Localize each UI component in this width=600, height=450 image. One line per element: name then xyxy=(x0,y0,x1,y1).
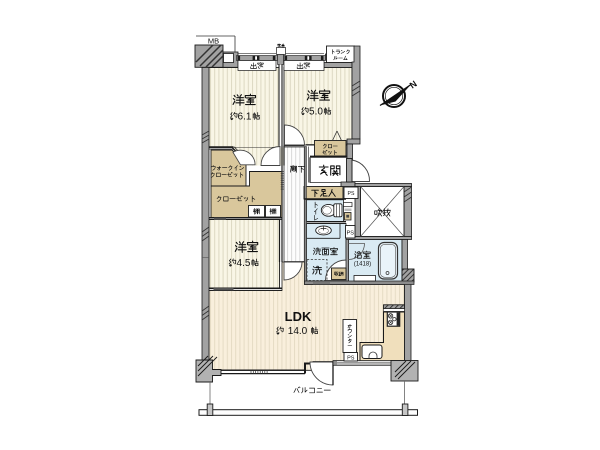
svg-text:PS: PS xyxy=(347,230,355,236)
svg-text:LDK: LDK xyxy=(285,309,312,324)
svg-text:14.0: 14.0 xyxy=(288,326,308,337)
svg-text:6.1: 6.1 xyxy=(238,111,252,122)
svg-text:4.5: 4.5 xyxy=(237,258,251,269)
svg-text:PS: PS xyxy=(347,355,355,361)
svg-text:MB: MB xyxy=(208,37,219,46)
svg-text:(1418): (1418) xyxy=(354,261,371,267)
svg-text:PS: PS xyxy=(348,191,355,197)
svg-text:5.0: 5.0 xyxy=(309,106,323,117)
